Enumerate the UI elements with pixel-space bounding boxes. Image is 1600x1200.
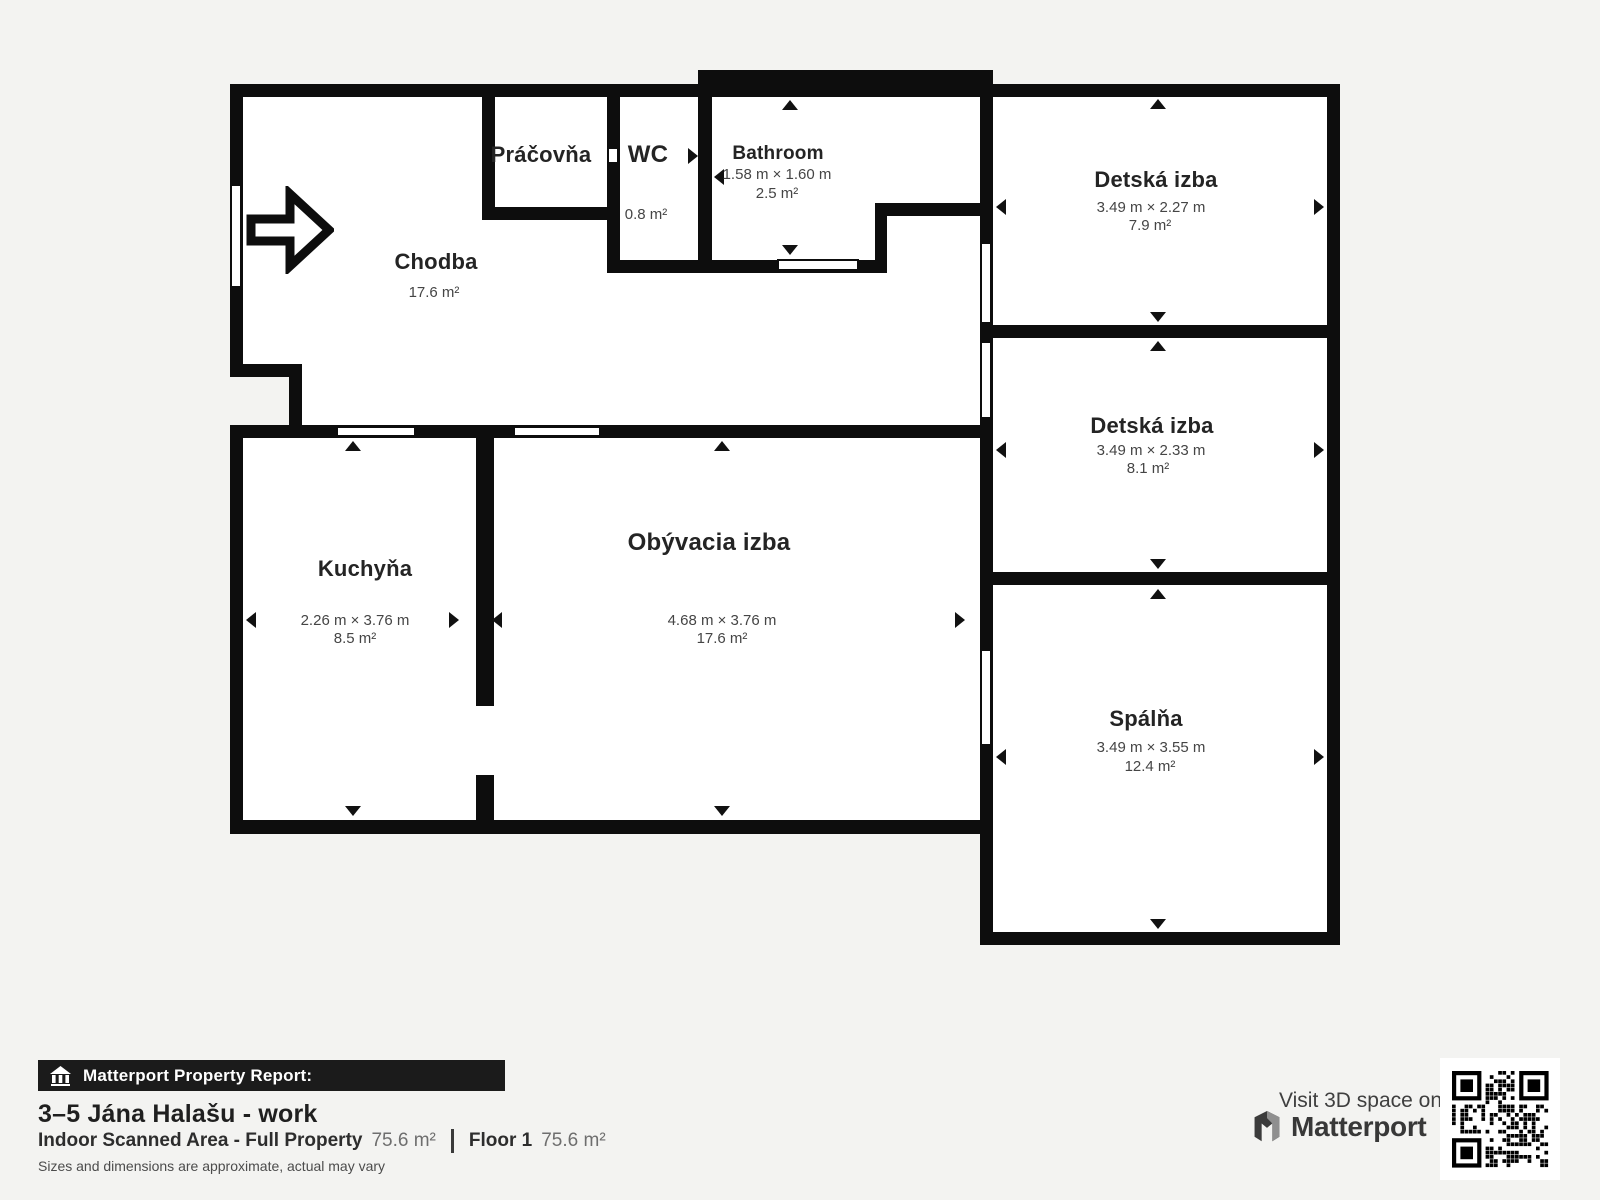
wall-bedroom-divider [980,572,1340,585]
room-area-kidsroom2: 8.1 m² [1127,460,1170,477]
bedroom-arrow-up [1150,589,1166,599]
room-label-hallway: Chodba [394,249,477,275]
livingroom-arrow-right [955,612,965,628]
wall-top-left [230,84,712,97]
livingroom-arrow-up [714,441,730,451]
matterport-floorplan-report: Práčovňa WC 0.8 m² Bathroom 1.58 m × 1.6… [0,0,1600,1200]
room-label-wc: WC [628,141,668,169]
matterport-logo-icon [1251,1110,1283,1144]
bathroom-arrow-up [782,100,798,110]
room-area-hallway: 17.6 m² [409,284,460,301]
report-banner-label: Matterport Property Report: [83,1066,312,1086]
livingroom-arrow-down [714,806,730,816]
entrance-arrow-icon [246,186,334,274]
wc-arrow-right [688,148,698,164]
stats-divider [451,1129,454,1153]
wall-laundry-bottom [482,207,620,220]
kidsroom2-arrow-right [1314,442,1324,458]
report-banner: Matterport Property Report: [38,1060,505,1091]
room-dims-livingroom: 4.68 m × 3.76 m [668,612,777,629]
room-area-bathroom: 2.5 m² [756,185,799,202]
wall-right-outer [1327,84,1340,945]
wall-wc-left [607,84,620,273]
room-area-wc: 0.8 m² [625,206,668,223]
kidsroom2-door-opening [980,341,992,419]
entrance-opening [230,184,242,288]
room-dims-bathroom: 1.58 m × 1.60 m [723,166,832,183]
bedroom-arrow-right [1314,749,1324,765]
wall-bottom-left-block [230,820,993,834]
matterport-logo-text: Matterport [1291,1111,1426,1143]
room-dims-kidsroom1: 3.49 m × 2.27 m [1097,199,1206,216]
kitchen-arrow-up [345,441,361,451]
wall-wc-bottom [607,260,712,273]
matterport-logo: Matterport [1251,1110,1426,1144]
wc-door-opening [607,147,619,164]
room-label-kidsroom1: Detská izba [1094,167,1217,193]
wall-kitchen-living-divider [476,425,494,706]
wall-center-vertical [980,70,993,945]
room-label-bathroom: Bathroom [732,143,823,165]
room-label-livingroom: Obývacia izba [628,529,791,557]
kidsroom1-arrow-right [1314,199,1324,215]
wall-bathroom-notch-horizontal [875,203,993,216]
property-title: 3–5 Jána Halašu - work [38,1100,318,1129]
report-house-icon [50,1066,71,1086]
wall-kitchen-left [230,425,243,834]
room-dims-kidsroom2: 3.49 m × 2.33 m [1097,442,1206,459]
room-area-kitchen: 8.5 m² [334,630,377,647]
bedroom-door-opening [980,649,992,746]
room-dims-bedroom: 3.49 m × 3.55 m [1097,739,1206,756]
floor-label: Floor 1 [469,1130,532,1152]
room-area-kidsroom1: 7.9 m² [1129,217,1172,234]
wall-right-block-bottom [980,932,1340,945]
wall-wc-right [698,70,712,273]
room-dims-kitchen: 2.26 m × 3.76 m [301,612,410,629]
room-label-laundry: Práčovňa [491,142,592,168]
kitchen-arrow-down [345,806,361,816]
bedroom-arrow-down [1150,919,1166,929]
wall-kidsroom-divider [980,325,1340,338]
kitchen-door-opening [336,426,416,437]
kitchen-arrow-left [246,612,256,628]
kidsroom2-arrow-down [1150,559,1166,569]
notch-background [230,377,289,425]
area-stats: Indoor Scanned Area - Full Property 75.6… [38,1129,606,1153]
scanned-area-value: 75.6 m² [371,1130,435,1152]
bathroom-door-opening [777,259,859,271]
wall-right-block-top [980,84,1340,97]
livingroom-door-opening [513,426,601,437]
room-label-bedroom: Spálňa [1109,706,1182,732]
room-area-livingroom: 17.6 m² [697,630,748,647]
kidsroom1-arrow-up [1150,99,1166,109]
room-label-kitchen: Kuchyňa [318,556,412,582]
disclaimer-text: Sizes and dimensions are approximate, ac… [38,1158,385,1174]
scanned-area-label: Indoor Scanned Area - Full Property [38,1130,362,1152]
kidsroom1-arrow-down [1150,312,1166,322]
livingroom-arrow-left [492,612,502,628]
wall-bathroom-top [698,70,993,97]
bathroom-arrow-down [782,245,798,255]
kidsroom1-arrow-left [996,199,1006,215]
room-area-bedroom: 12.4 m² [1125,758,1176,775]
wall-kitchen-living-divider-stub [476,775,494,834]
bedroom-arrow-left [996,749,1006,765]
qr-code [1440,1058,1560,1180]
kidsroom1-door-opening [980,242,992,324]
kidsroom2-arrow-up [1150,341,1166,351]
floor-value: 75.6 m² [541,1130,605,1152]
kitchen-arrow-right [449,612,459,628]
room-label-kidsroom2: Detská izba [1090,413,1213,439]
kidsroom2-arrow-left [996,442,1006,458]
